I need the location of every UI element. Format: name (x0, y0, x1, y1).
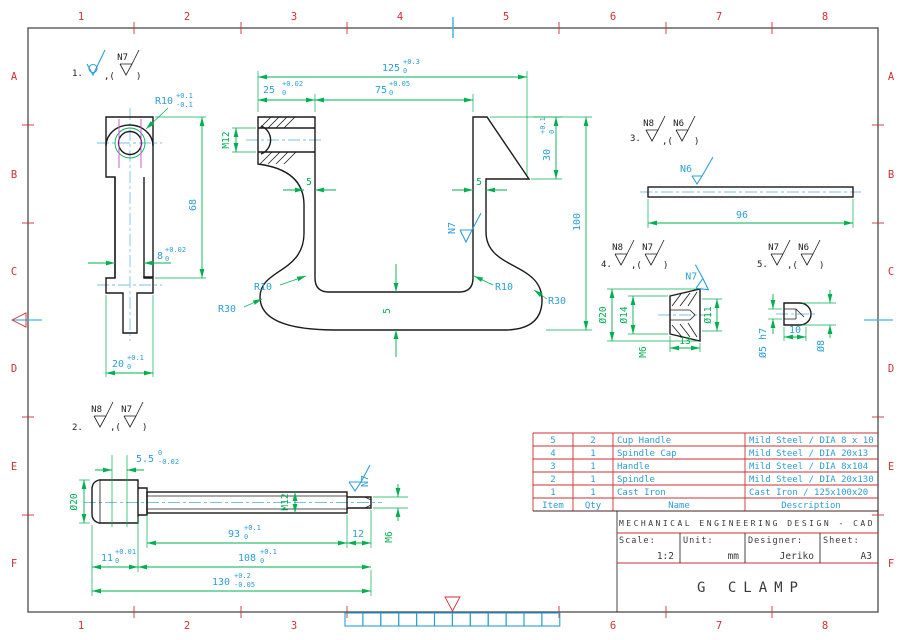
dim-11-tol-bot: 0 (115, 557, 119, 565)
note-number: 4. (601, 260, 612, 270)
dim-30-tol-top: +0.1 (539, 117, 547, 134)
grid-col-label: 8 (822, 11, 828, 23)
dim-dia8: Ø8 (815, 340, 827, 352)
cell-qty: 1 (590, 488, 595, 498)
dim-10: 10 (789, 325, 801, 336)
roughness-grade: N7 (768, 243, 779, 253)
roughness-icon: N7 (349, 465, 371, 491)
cell-name: Spindle (617, 475, 655, 485)
scale-value: 1:2 (657, 551, 674, 562)
grid-col-label: 2 (184, 620, 190, 632)
cell-item: 1 (550, 488, 555, 498)
grid-col-label: 6 (610, 620, 616, 632)
unit-value: mm (728, 551, 740, 562)
roughness-grade: N7 (685, 271, 697, 282)
hatching (672, 292, 697, 337)
cell-item: 3 (550, 462, 555, 472)
dim-20-tol-bot: 0 (127, 363, 131, 371)
dim-20: 20 (112, 359, 124, 370)
designer-value: Jeriko (780, 551, 815, 562)
dim-25: 25 (263, 85, 275, 96)
sheet-label: Sheet: (823, 536, 860, 546)
cell-description: Mild Steel / DIA 8x104 (749, 462, 868, 472)
roughness-grade: N6 (798, 243, 809, 253)
cell-description: Mild Steel / DIA 20x130 (749, 475, 874, 485)
grid-row-label: A (11, 71, 18, 83)
dim-8-tol-bot: 0 (165, 255, 169, 263)
drawing-title: G CLAMP (697, 580, 805, 596)
machined-all-over-icon (87, 50, 105, 75)
grid-row-label: B (888, 169, 894, 181)
grid-col-label: 6 (610, 11, 616, 23)
roughness-icon: N6 (680, 157, 713, 184)
dim-m6: M6 (638, 346, 649, 358)
dim-25-tol-top: +0.02 (282, 80, 303, 88)
dim-dia20: Ø20 (69, 493, 80, 510)
roughness-grade: N7 (642, 243, 653, 253)
dim-8-tol-top: +0.02 (165, 246, 186, 254)
dim-r10-tol-top: +0.1 (176, 92, 193, 100)
roughness-icon: N6 (673, 116, 695, 141)
dim-dia20: Ø20 (598, 306, 609, 323)
note-paren: ) (136, 72, 141, 82)
note-comma: ,( (787, 261, 798, 271)
dim-125: 125 (382, 63, 400, 74)
roughness-icon: N7 (642, 240, 664, 265)
view2-spindle: 2. N8 ,( N7 ) 5.5 0 -0.02 Ø20 (69, 402, 408, 596)
grid-col-label: 3 (291, 620, 297, 632)
cell-description: Cast Iron / 125x100x20 (749, 488, 868, 498)
note-number: 5. (757, 260, 768, 270)
cell-qty: 1 (590, 449, 595, 459)
organization-title: MECHANICAL ENGINEERING DESIGN - CAD (619, 519, 875, 528)
surface-note-1: 1. ,( N7 ) (72, 50, 141, 82)
table-row: 5 2 Cup Handle Mild Steel / DIA 8 x 10 (550, 436, 873, 446)
note-paren: ) (694, 137, 699, 147)
designer-label: Designer: (748, 536, 803, 546)
grid-row-label: C (11, 266, 17, 278)
center-mark-bottom (445, 597, 460, 611)
table-row: 2 1 Spindle Mild Steel / DIA 20x130 (550, 475, 873, 485)
dim-20-tol-top: +0.1 (127, 354, 144, 362)
dim-75-tol-bot: 0 (389, 89, 393, 97)
table-row: 1 1 Cast Iron Cast Iron / 125x100x20 (550, 488, 868, 498)
cell-item: 2 (550, 475, 555, 485)
dim-108-tol-bot: 0 (260, 557, 264, 565)
dim-93: 93 (228, 529, 240, 540)
dim-96: 96 (736, 210, 748, 221)
dim-100: 100 (572, 213, 583, 231)
roughness-grade: N6 (680, 164, 692, 175)
table-header-row: Item Qty Name Description (542, 501, 841, 511)
grid-col-label: 5 (503, 11, 509, 23)
note-paren: ) (663, 261, 668, 271)
dim-93-tol-bot: 0 (244, 533, 248, 541)
unit-label: Unit: (683, 536, 714, 546)
roughness-icon: N7 (680, 262, 716, 296)
dim-dia5h7: Ø5 h7 (757, 328, 769, 358)
dim-25-tol-bot: 0 (282, 89, 286, 97)
dim-m12: M12 (221, 131, 232, 148)
dim-11-tol-top: +0.01 (115, 548, 136, 556)
grid-col-label: 4 (397, 11, 403, 23)
roughness-grade: N6 (673, 119, 684, 129)
grid-row-label: D (11, 363, 17, 375)
cell-qty: 1 (590, 475, 595, 485)
main-view-body: M12 25 +0.02 0 75 +0.05 0 125 +0.3 0 30 … (218, 58, 592, 357)
dim-13: 13 (679, 336, 690, 347)
dim-12: 12 (352, 529, 364, 540)
dim-m12: M12 (280, 493, 291, 510)
dim-108-tol-top: +0.1 (260, 548, 277, 556)
grid-row-label: F (888, 558, 894, 570)
roughness-grade: N7 (360, 475, 371, 487)
note-number: 2. (72, 423, 83, 433)
grid-row-label: B (11, 169, 17, 181)
cell-item: 5 (550, 436, 555, 446)
cell-qty: 2 (590, 436, 595, 446)
cell-description: Mild Steel / DIA 8 x 10 (749, 436, 874, 446)
grid-col-label: 1 (78, 620, 84, 632)
dim-5-bottom: 5 (382, 308, 393, 314)
grid-col-label: 8 (822, 620, 828, 632)
roughness-grade: N8 (612, 243, 623, 253)
dim-r10-left: R10 (254, 282, 272, 293)
scale-label: Scale: (619, 536, 656, 546)
dim-5.5: 5.5 (136, 454, 154, 465)
cad-drawing-sheet: 1 2 3 4 5 6 7 8 1 2 3 6 7 8 A B C D E F … (0, 0, 905, 640)
grid-col-label: 7 (716, 620, 722, 632)
title-block: MECHANICAL ENGINEERING DESIGN - CAD Scal… (533, 511, 878, 612)
sheet-value: A3 (861, 551, 872, 562)
cell-name: Cast Iron (617, 488, 666, 498)
grid-col-label: 3 (291, 11, 297, 23)
roughness-icon: N7 (447, 213, 481, 242)
dim-r30-right: R30 (548, 296, 566, 307)
dim-m6: M6 (384, 531, 395, 543)
roughness-grade: N7 (117, 53, 128, 63)
parts-table: 5 2 Cup Handle Mild Steel / DIA 8 x 10 4… (533, 433, 878, 511)
dim-5.5-tol-bot: -0.02 (158, 458, 179, 466)
note-comma: ,( (104, 72, 115, 82)
grid-row-label: D (888, 363, 894, 375)
dim-130: 130 (212, 577, 230, 588)
note-paren: ) (142, 423, 147, 433)
dim-125-tol-bot: 0 (403, 67, 407, 75)
dim-75-tol-top: +0.05 (389, 80, 410, 88)
table-row: 4 1 Spindle Cap Mild Steel / DIA 20x13 (550, 449, 868, 459)
note-paren: ) (819, 261, 824, 271)
dim-30: 30 (542, 149, 553, 161)
dim-5.5-tol-top: 0 (158, 449, 162, 457)
cell-name: Handle (617, 462, 650, 472)
dim-r10-right: R10 (495, 282, 513, 293)
cell-item: 4 (550, 449, 555, 459)
dim-11: 11 (101, 553, 113, 564)
dim-93-tol-top: +0.1 (244, 524, 261, 532)
dim-130-tol-bot: -0.05 (234, 581, 255, 589)
dim-dia14: Ø14 (619, 306, 630, 323)
grid-row-label: E (888, 461, 894, 473)
note-comma: ,( (110, 423, 121, 433)
roughness-grade: N8 (91, 405, 102, 415)
grid-col-label: 2 (184, 11, 190, 23)
dim-dia11: Ø11 (703, 306, 714, 323)
dim-130-tol-top: +0.2 (234, 572, 251, 580)
view3-handle: 3. N8 ,( N6 ) N6 96 (630, 116, 861, 228)
roughness-grade: N7 (447, 222, 458, 234)
dim-5-left: 5 (306, 177, 312, 188)
view1-frame-side: R10 +0.1 -0.1 68 8 +0.02 0 20 +0.1 0 (88, 92, 206, 377)
scale-comb (345, 613, 560, 626)
dim-108: 108 (238, 553, 256, 564)
view5-cup-handle: 5. N7 ,( N6 ) Ø5 h7 10 Ø8 (757, 240, 836, 358)
roughness-icon: N6 (798, 240, 820, 265)
note-comma: ,( (631, 261, 642, 271)
header-item: Item (542, 501, 564, 511)
dim-r10: R10 (155, 96, 173, 107)
dim-125-tol-top: +0.3 (403, 58, 420, 66)
cell-description: Mild Steel / DIA 20x13 (749, 449, 868, 459)
table-row: 3 1 Handle Mild Steel / DIA 8x104 (550, 462, 868, 472)
grid-col-label: 1 (78, 11, 84, 23)
dim-8: 8 (157, 251, 163, 262)
header-qty: Qty (585, 501, 602, 511)
drawing-canvas: 1 2 3 4 5 6 7 8 1 2 3 6 7 8 A B C D E F … (0, 0, 905, 640)
hatching (260, 117, 296, 164)
view4-spindle-cap: 4. N8 ,( N7 ) N7 Ø20 Ø14 (598, 240, 722, 358)
header-name: Name (668, 501, 690, 511)
dim-r10-tol-bot: -0.1 (176, 101, 193, 109)
dim-68: 68 (188, 199, 199, 211)
grid-row-label: F (11, 558, 17, 570)
dim-r30-left: R30 (218, 304, 236, 315)
cell-qty: 1 (590, 462, 595, 472)
header-description: Description (781, 501, 841, 511)
note-comma: ,( (662, 137, 673, 147)
note-number: 1. (72, 69, 83, 79)
dim-5-right: 5 (476, 177, 482, 188)
dim-75: 75 (375, 85, 387, 96)
roughness-grade: N8 (643, 119, 654, 129)
roughness-grade: N7 (121, 405, 132, 415)
grid-col-label: 7 (716, 11, 722, 23)
grid-row-label: C (888, 266, 894, 278)
note-number: 3. (630, 134, 641, 144)
dim-30-tol-bot: 0 (548, 130, 556, 134)
grid-row-label: A (888, 71, 895, 83)
grid-row-label: E (11, 461, 17, 473)
cell-name: Spindle Cap (617, 449, 677, 459)
center-mark-left (12, 313, 42, 327)
cell-name: Cup Handle (617, 436, 671, 446)
roughness-icon: N7 (121, 402, 143, 427)
